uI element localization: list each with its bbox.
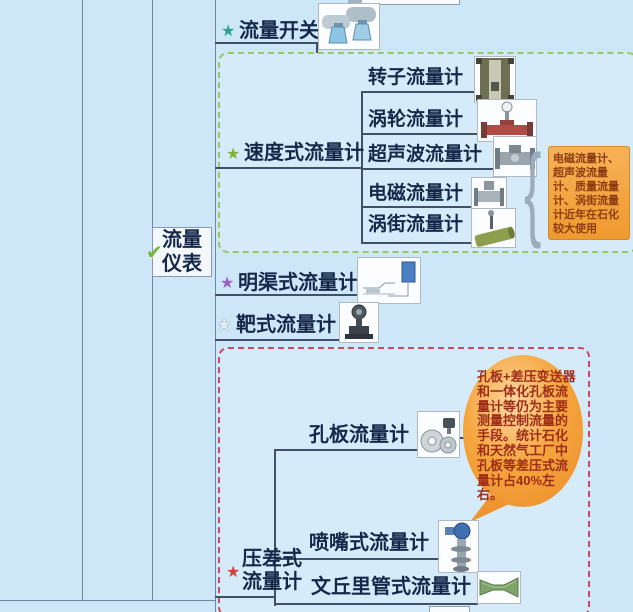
connector xyxy=(361,206,472,208)
nozzle-flowmeter-image xyxy=(438,520,479,573)
connector xyxy=(274,449,418,451)
node-ultrasonic-flowmeter[interactable]: 超声波流量计 xyxy=(368,144,482,166)
node-nozzle-flowmeter[interactable]: 喷嘴式流量计 xyxy=(309,532,429,554)
connector xyxy=(274,603,478,605)
velocity-note: 电磁流量计、超声波流量计、质量流量计、涡街流量计近年在石化较大使用 xyxy=(548,146,630,240)
orifice-flowmeter-image xyxy=(417,411,460,458)
dp-label-line2: 流量计 xyxy=(242,571,302,593)
connector xyxy=(215,596,276,598)
star-icon: ★ xyxy=(220,276,234,292)
node-open-channel-flowmeter[interactable]: 明渠式流量计 xyxy=(238,272,358,294)
node-orifice-flowmeter[interactable]: 孔板流量计 xyxy=(309,424,409,446)
root-label-line2: 仪表 xyxy=(162,252,202,276)
rotor-flowmeter-image xyxy=(474,56,516,103)
dp-label-line1: 压差式 xyxy=(242,548,302,570)
connector xyxy=(361,133,478,135)
connector xyxy=(215,294,358,296)
node-vortex-flowmeter[interactable]: 涡街流量计 xyxy=(368,214,463,236)
node-flow-switch[interactable]: 流量开关 xyxy=(239,20,319,42)
grid-column-line xyxy=(82,0,83,601)
connector xyxy=(215,42,318,44)
star-icon: ★ xyxy=(221,24,235,40)
grid-column-line xyxy=(152,0,153,601)
connector xyxy=(215,339,340,341)
root-label-line1: 流量 xyxy=(162,228,202,252)
grid-row-line xyxy=(0,600,216,601)
venturi-flowmeter-image xyxy=(477,571,521,604)
check-icon: ✔ xyxy=(146,240,163,265)
vortex-flowmeter-image xyxy=(471,208,516,248)
star-icon: ★ xyxy=(226,565,240,581)
star-icon: ★ xyxy=(226,147,240,163)
connector xyxy=(361,242,472,244)
node-rotor-flowmeter[interactable]: 转子流量计 xyxy=(368,67,463,89)
node-turbine-flowmeter[interactable]: 涡轮流量计 xyxy=(368,109,463,131)
node-electromagnetic-flowmeter[interactable]: 电磁流量计 xyxy=(368,183,463,205)
node-venturi-flowmeter[interactable]: 文丘里管式流量计 xyxy=(311,576,471,598)
connector xyxy=(215,167,363,169)
brace-decoration: { xyxy=(524,140,537,244)
node-velocity-flowmeter[interactable]: 速度式流量计 xyxy=(244,142,364,164)
flow-switch-image xyxy=(318,3,380,50)
target-flowmeter-image xyxy=(339,302,379,343)
mindmap-canvas: 流量 仪表 ✔ ★ 流量开关 ★ 速度式流量计 转子流量计 涡轮流量计 xyxy=(0,0,633,612)
dp-note-text: 孔板+差压变送器和一体化孔板流量计等仍为主要测量控制流量的手段。统计石化和天然气… xyxy=(477,370,577,503)
connector xyxy=(361,168,494,170)
connector xyxy=(361,91,475,93)
electromagnetic-flowmeter-image xyxy=(471,177,507,211)
node-target-flowmeter[interactable]: 靶式流量计 xyxy=(236,314,336,336)
node-differential-pressure-flowmeter[interactable]: 压差式 流量计 xyxy=(241,548,303,594)
spine-line xyxy=(215,0,216,612)
star-icon: ★ xyxy=(217,318,231,334)
cutoff-node-bottom xyxy=(429,606,470,612)
open-channel-flowmeter-image xyxy=(357,257,421,304)
